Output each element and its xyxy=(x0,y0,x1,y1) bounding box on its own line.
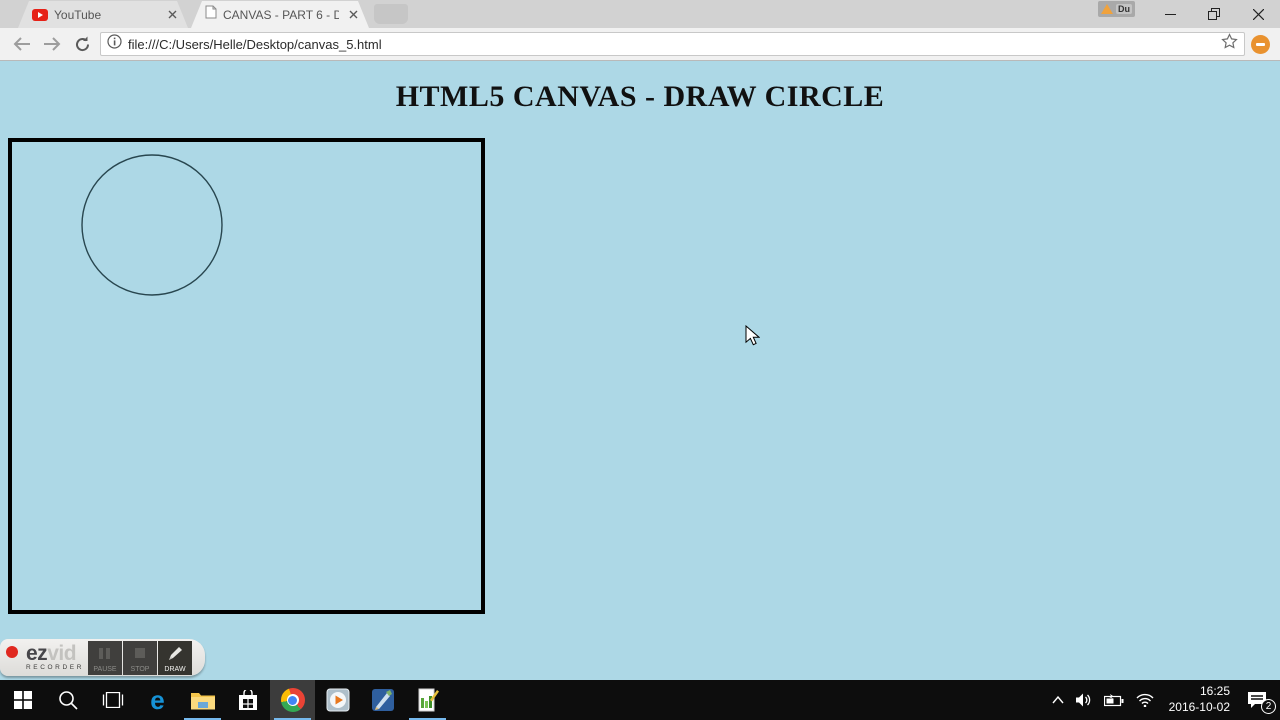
taskbar: e xyxy=(0,680,1280,720)
youtube-icon xyxy=(32,9,48,21)
ezvid-logo-light: vid xyxy=(47,642,76,665)
reload-button[interactable] xyxy=(70,32,94,56)
file-explorer-button[interactable] xyxy=(180,680,225,720)
recording-dot-icon xyxy=(6,646,18,658)
address-bar[interactable]: file:///C:/Users/Helle/Desktop/canvas_5.… xyxy=(100,32,1245,56)
editor-doc-icon xyxy=(417,688,439,712)
wifi-icon[interactable] xyxy=(1133,680,1157,720)
new-tab-button[interactable] xyxy=(374,4,408,24)
pause-button[interactable]: PAUSE xyxy=(88,641,122,675)
browser-toolbar: file:///C:/Users/Helle/Desktop/canvas_5.… xyxy=(0,28,1280,61)
drawn-circle xyxy=(82,155,222,295)
tab-strip: YouTube CANVAS - PART 6 - DRA Du xyxy=(0,0,1280,28)
clock-date: 2016-10-02 xyxy=(1169,700,1230,716)
clock-time: 16:25 xyxy=(1169,684,1230,700)
tab-close-icon[interactable] xyxy=(164,7,180,23)
store-bag-icon xyxy=(238,690,258,711)
canvas-element[interactable] xyxy=(8,138,485,614)
paint-brush-icon xyxy=(371,688,395,712)
window-controls xyxy=(1148,0,1280,28)
extension-icon[interactable] xyxy=(1251,35,1270,54)
forward-button[interactable] xyxy=(40,32,64,56)
ezvid-buttons: PAUSE STOP DRAW xyxy=(88,641,192,675)
draw-label: DRAW xyxy=(158,666,192,673)
folder-icon xyxy=(191,691,215,710)
browser-window: YouTube CANVAS - PART 6 - DRA Du xyxy=(0,0,1280,720)
tray-chevron-icon[interactable] xyxy=(1049,680,1067,720)
windows-logo-icon xyxy=(14,691,32,709)
task-view-icon xyxy=(102,692,124,708)
media-player-button[interactable] xyxy=(315,680,360,720)
tab-close-icon[interactable] xyxy=(345,7,361,23)
restore-button[interactable] xyxy=(1192,0,1236,28)
search-button[interactable] xyxy=(45,680,90,720)
edge-button[interactable]: e xyxy=(135,680,180,720)
editor-app-button[interactable] xyxy=(405,680,450,720)
ezvid-logo-bold: ez xyxy=(26,642,47,665)
tab-label: YouTube xyxy=(54,8,158,22)
ezvid-logo-sub: RECORDER xyxy=(26,665,84,672)
start-button[interactable] xyxy=(0,680,45,720)
paint-app-button[interactable] xyxy=(360,680,405,720)
stop-label: STOP xyxy=(123,666,157,673)
back-button[interactable] xyxy=(10,32,34,56)
search-icon xyxy=(58,690,78,710)
store-button[interactable] xyxy=(225,680,270,720)
warning-badge: Du xyxy=(1098,1,1135,17)
tab-youtube[interactable]: YouTube xyxy=(18,1,188,28)
action-center-button[interactable]: 2 xyxy=(1242,680,1272,720)
page-file-icon xyxy=(205,5,217,24)
warning-icon xyxy=(1101,4,1113,14)
stop-button[interactable]: STOP xyxy=(123,641,157,675)
taskbar-clock[interactable]: 16:25 2016-10-02 xyxy=(1163,684,1236,715)
ezvid-recorder-overlay: ezvid RECORDER PAUSE STOP DRAW xyxy=(0,639,205,676)
draw-button[interactable]: DRAW xyxy=(158,641,192,675)
page-info-icon[interactable] xyxy=(107,34,122,54)
pencil-icon xyxy=(167,646,183,662)
pause-icon xyxy=(99,648,110,659)
page-content: HTML5 CANVAS - DRAW CIRCLE ezvid RECORDE… xyxy=(0,61,1280,720)
warning-badge-label: Du xyxy=(1116,4,1132,14)
pause-label: PAUSE xyxy=(88,666,122,673)
page-title: HTML5 CANVAS - DRAW CIRCLE xyxy=(0,80,1280,114)
system-tray: 16:25 2016-10-02 2 xyxy=(1049,680,1280,720)
ezvid-logo: ezvid RECORDER xyxy=(26,643,84,672)
chrome-button[interactable] xyxy=(270,680,315,720)
close-window-button[interactable] xyxy=(1236,0,1280,28)
edge-icon: e xyxy=(150,687,164,713)
notification-badge: 2 xyxy=(1261,699,1276,714)
task-view-button[interactable] xyxy=(90,680,135,720)
minimize-button[interactable] xyxy=(1148,0,1192,28)
tab-canvas[interactable]: CANVAS - PART 6 - DRA xyxy=(191,1,369,28)
mouse-cursor xyxy=(745,325,760,351)
battery-icon[interactable] xyxy=(1101,680,1127,720)
media-player-icon xyxy=(326,688,350,712)
chrome-icon xyxy=(281,688,305,712)
bookmark-star-icon[interactable] xyxy=(1221,33,1238,55)
stop-icon xyxy=(135,648,145,658)
volume-icon[interactable] xyxy=(1073,680,1095,720)
url-text[interactable]: file:///C:/Users/Helle/Desktop/canvas_5.… xyxy=(128,37,1215,52)
tab-label: CANVAS - PART 6 - DRA xyxy=(223,8,339,22)
